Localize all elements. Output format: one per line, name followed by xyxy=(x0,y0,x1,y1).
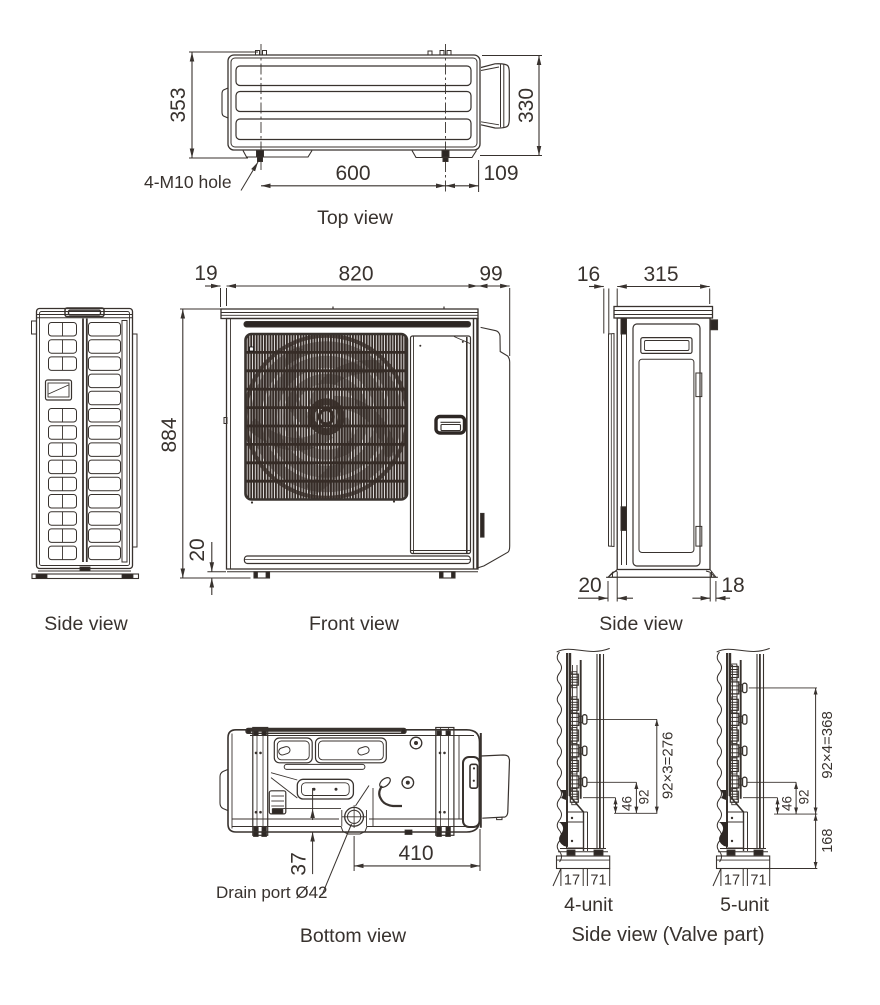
svg-text:20: 20 xyxy=(578,574,601,597)
svg-text:92×3=276: 92×3=276 xyxy=(660,732,677,800)
svg-text:Drain port Ø42: Drain port Ø42 xyxy=(216,883,328,902)
svg-text:5-unit: 5-unit xyxy=(720,894,769,916)
svg-text:92: 92 xyxy=(637,789,652,804)
svg-text:Front view: Front view xyxy=(309,613,400,635)
svg-text:168: 168 xyxy=(820,829,836,853)
svg-text:4-M10 hole: 4-M10 hole xyxy=(144,172,232,192)
svg-text:71: 71 xyxy=(750,873,766,889)
svg-text:19: 19 xyxy=(194,262,217,285)
svg-text:71: 71 xyxy=(590,873,606,889)
svg-text:46: 46 xyxy=(620,796,635,811)
svg-text:17: 17 xyxy=(564,873,580,889)
svg-text:Side view: Side view xyxy=(599,613,683,635)
svg-text:Side view (Valve part): Side view (Valve part) xyxy=(571,924,764,946)
svg-text:884: 884 xyxy=(158,417,181,452)
svg-text:410: 410 xyxy=(398,842,433,865)
svg-text:17: 17 xyxy=(724,873,740,889)
svg-text:353: 353 xyxy=(167,87,190,122)
svg-text:330: 330 xyxy=(515,88,538,123)
svg-text:Top view: Top view xyxy=(317,207,394,229)
svg-text:46: 46 xyxy=(780,796,795,811)
svg-text:92: 92 xyxy=(797,789,812,804)
svg-text:315: 315 xyxy=(643,263,678,286)
svg-text:Bottom view: Bottom view xyxy=(300,925,407,947)
svg-text:20: 20 xyxy=(186,538,209,561)
svg-text:37: 37 xyxy=(288,852,311,875)
svg-text:820: 820 xyxy=(338,263,373,286)
svg-text:Side view: Side view xyxy=(44,613,128,635)
svg-text:16: 16 xyxy=(577,263,600,286)
svg-text:18: 18 xyxy=(721,574,744,597)
svg-text:600: 600 xyxy=(335,162,370,185)
svg-text:109: 109 xyxy=(483,162,518,185)
svg-text:4-unit: 4-unit xyxy=(564,894,613,916)
svg-text:92×4=368: 92×4=368 xyxy=(819,711,836,779)
svg-text:99: 99 xyxy=(479,263,502,286)
